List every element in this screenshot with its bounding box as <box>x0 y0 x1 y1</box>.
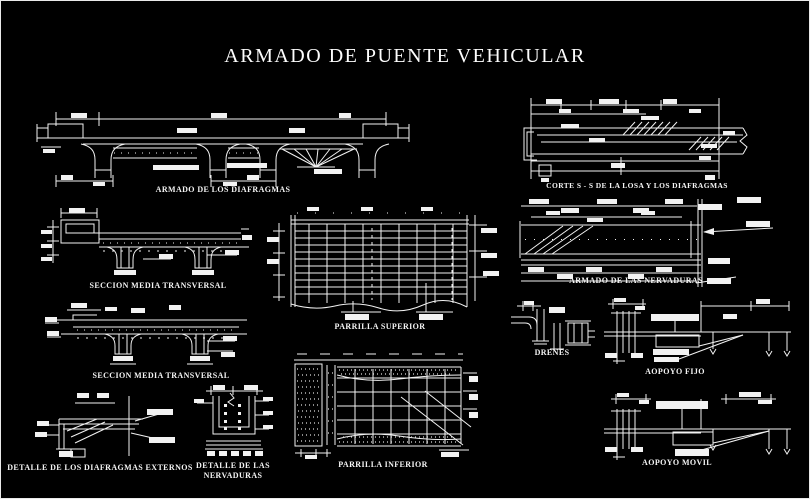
drawing-apoyo-movil <box>604 392 791 460</box>
cad-sheet: ARMADO DE PUENTE VEHICULAR ARMADO DE LOS… <box>0 0 810 499</box>
drawing-drenes <box>511 301 595 349</box>
drawing-parrilla-superior <box>267 207 499 320</box>
drawing-armado-nervaduras <box>520 197 773 287</box>
drawing-seccion-media-2 <box>45 303 247 364</box>
label-parrilla-inferior: PARRILLA INFERIOR <box>338 460 428 470</box>
drawing-armado-diafragmas <box>37 112 409 187</box>
drawing-parrilla-inferior <box>294 354 478 459</box>
label-parrilla-superior: PARRILLA SUPERIOR <box>335 322 426 332</box>
label-armado-nervaduras: ARMADO DE LAS NERVADURAS <box>569 276 703 286</box>
label-seccion-media-1: SECCION MEDIA TRANSVERSAL <box>90 281 227 291</box>
cad-linework <box>1 1 810 499</box>
sheet-title: ARMADO DE PUENTE VEHICULAR <box>224 45 585 68</box>
drawing-corte-ss <box>524 98 747 182</box>
drawing-apoyo-fijo <box>604 298 791 364</box>
label-detalle-diafragmas-externos: DETALLE DE LOS DIAFRAGMAS EXTERNOS <box>7 463 192 473</box>
label-drenes: DRENES <box>535 348 570 358</box>
drawing-detalle-diafragmas-externos <box>35 393 175 457</box>
label-detalle-nervaduras: DETALLE DE LAS NERVADURAS <box>196 461 270 481</box>
label-corte-ss: CORTE S - S DE LA LOSA Y LOS DIAFRAGMAS <box>546 181 728 190</box>
label-detalle-nervaduras-line1: DETALLE DE LAS <box>196 461 270 471</box>
label-detalle-nervaduras-line2: NERVADURAS <box>196 471 270 481</box>
drawing-detalle-nervaduras <box>194 385 273 456</box>
label-apoyo-movil: AOPOYO MOVIL <box>642 458 712 468</box>
label-armado-diafragmas: ARMADO DE LOS DIAFRAGMAS <box>156 185 291 195</box>
drawing-seccion-media-1 <box>41 208 252 275</box>
label-seccion-media-2: SECCION MEDIA TRANSVERSAL <box>93 371 230 381</box>
label-apoyo-fijo: AOPOYO FIJO <box>645 367 705 377</box>
